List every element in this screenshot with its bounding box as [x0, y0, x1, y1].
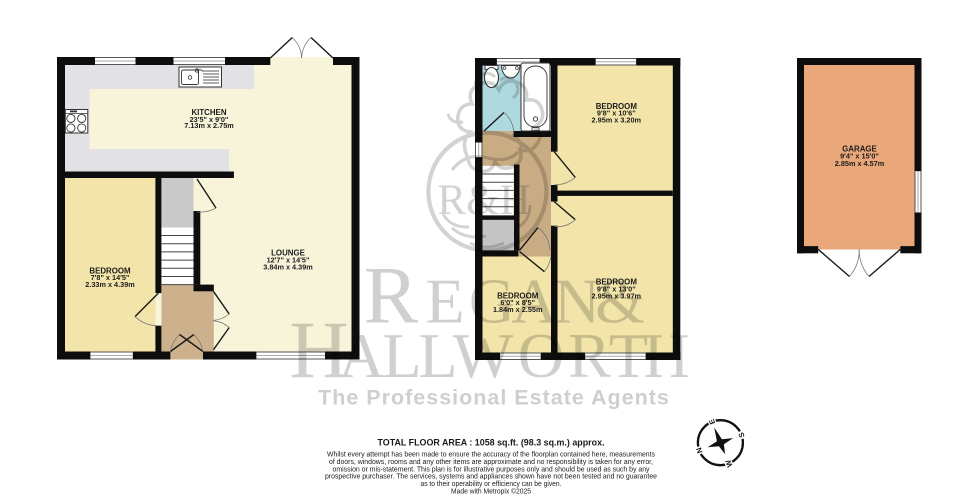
svg-text:7.13m x 2.75m: 7.13m x 2.75m [184, 121, 234, 130]
svg-text:omission or mis-statement. Thi: omission or mis-statement. This plan is … [333, 466, 650, 473]
svg-text:Made with Metropix ©2025: Made with Metropix ©2025 [451, 488, 531, 496]
svg-text:TOTAL FLOOR AREA : 1058 sq.ft.: TOTAL FLOOR AREA : 1058 sq.ft. (98.3 sq.… [378, 438, 605, 449]
svg-text:as to their operability or eff: as to their operability or efficiency ca… [421, 481, 562, 488]
svg-text:3.84m x 4.39m: 3.84m x 4.39m [263, 262, 313, 271]
svg-text:O: O [518, 320, 564, 391]
svg-text:The Professional Estate Agents: The Professional Estate Agents [318, 386, 670, 410]
svg-text:2.33m x 4.39m: 2.33m x 4.39m [85, 280, 135, 289]
svg-text:R&H: R&H [437, 177, 530, 224]
svg-text:prospective purchaser. The ser: prospective purchaser. The services, sys… [325, 474, 657, 481]
svg-text:Whilst every attempt has been: Whilst every attempt has been made to en… [327, 452, 655, 459]
svg-text:of doors, windows, rooms and a: of doors, windows, rooms and any other i… [329, 459, 653, 466]
svg-text:L: L [382, 320, 421, 391]
svg-text:H: H [643, 320, 689, 391]
svg-text:2.95m x 3.20m: 2.95m x 3.20m [592, 116, 642, 125]
svg-text:R: R [568, 320, 611, 391]
svg-text:W: W [453, 320, 514, 391]
svg-text:A: A [338, 320, 384, 391]
svg-text:T: T [609, 320, 648, 391]
svg-text:2.85m x 4.57m: 2.85m x 4.57m [835, 159, 885, 168]
svg-text:L: L [418, 320, 457, 391]
